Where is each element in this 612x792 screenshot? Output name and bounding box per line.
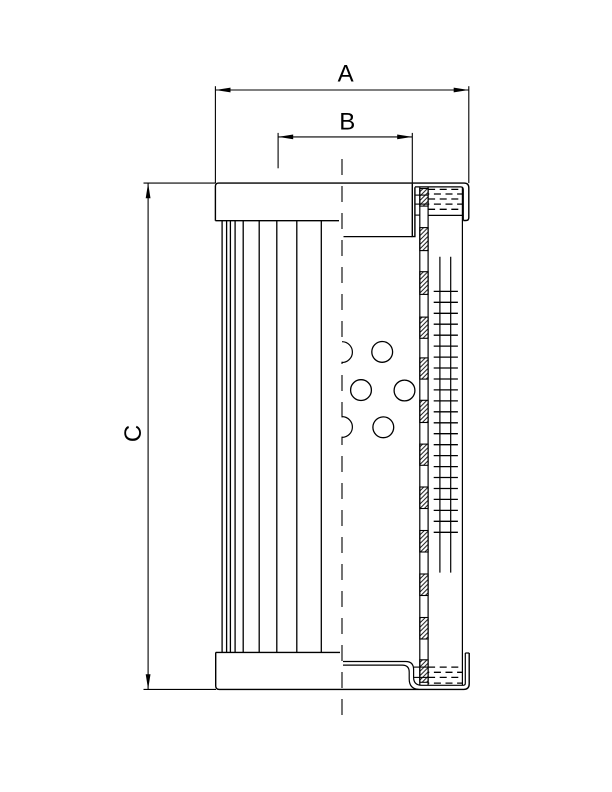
svg-text:A: A [338,61,354,88]
svg-text:C: C [120,425,147,442]
svg-text:B: B [339,108,355,135]
